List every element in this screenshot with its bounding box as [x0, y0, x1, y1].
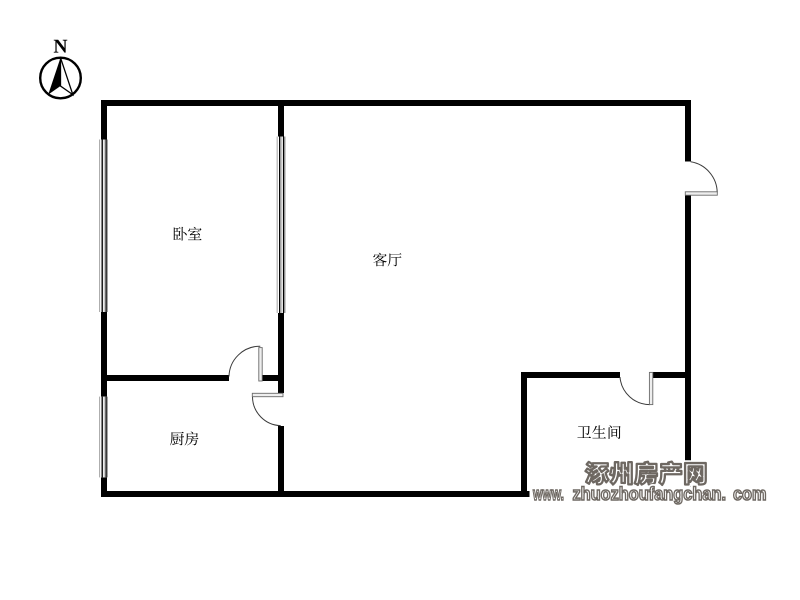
- svg-text:www.: www.: [532, 483, 564, 504]
- svg-text:zhuozhoufangchan.: zhuozhoufangchan.: [573, 483, 727, 504]
- svg-text:com: com: [733, 483, 767, 504]
